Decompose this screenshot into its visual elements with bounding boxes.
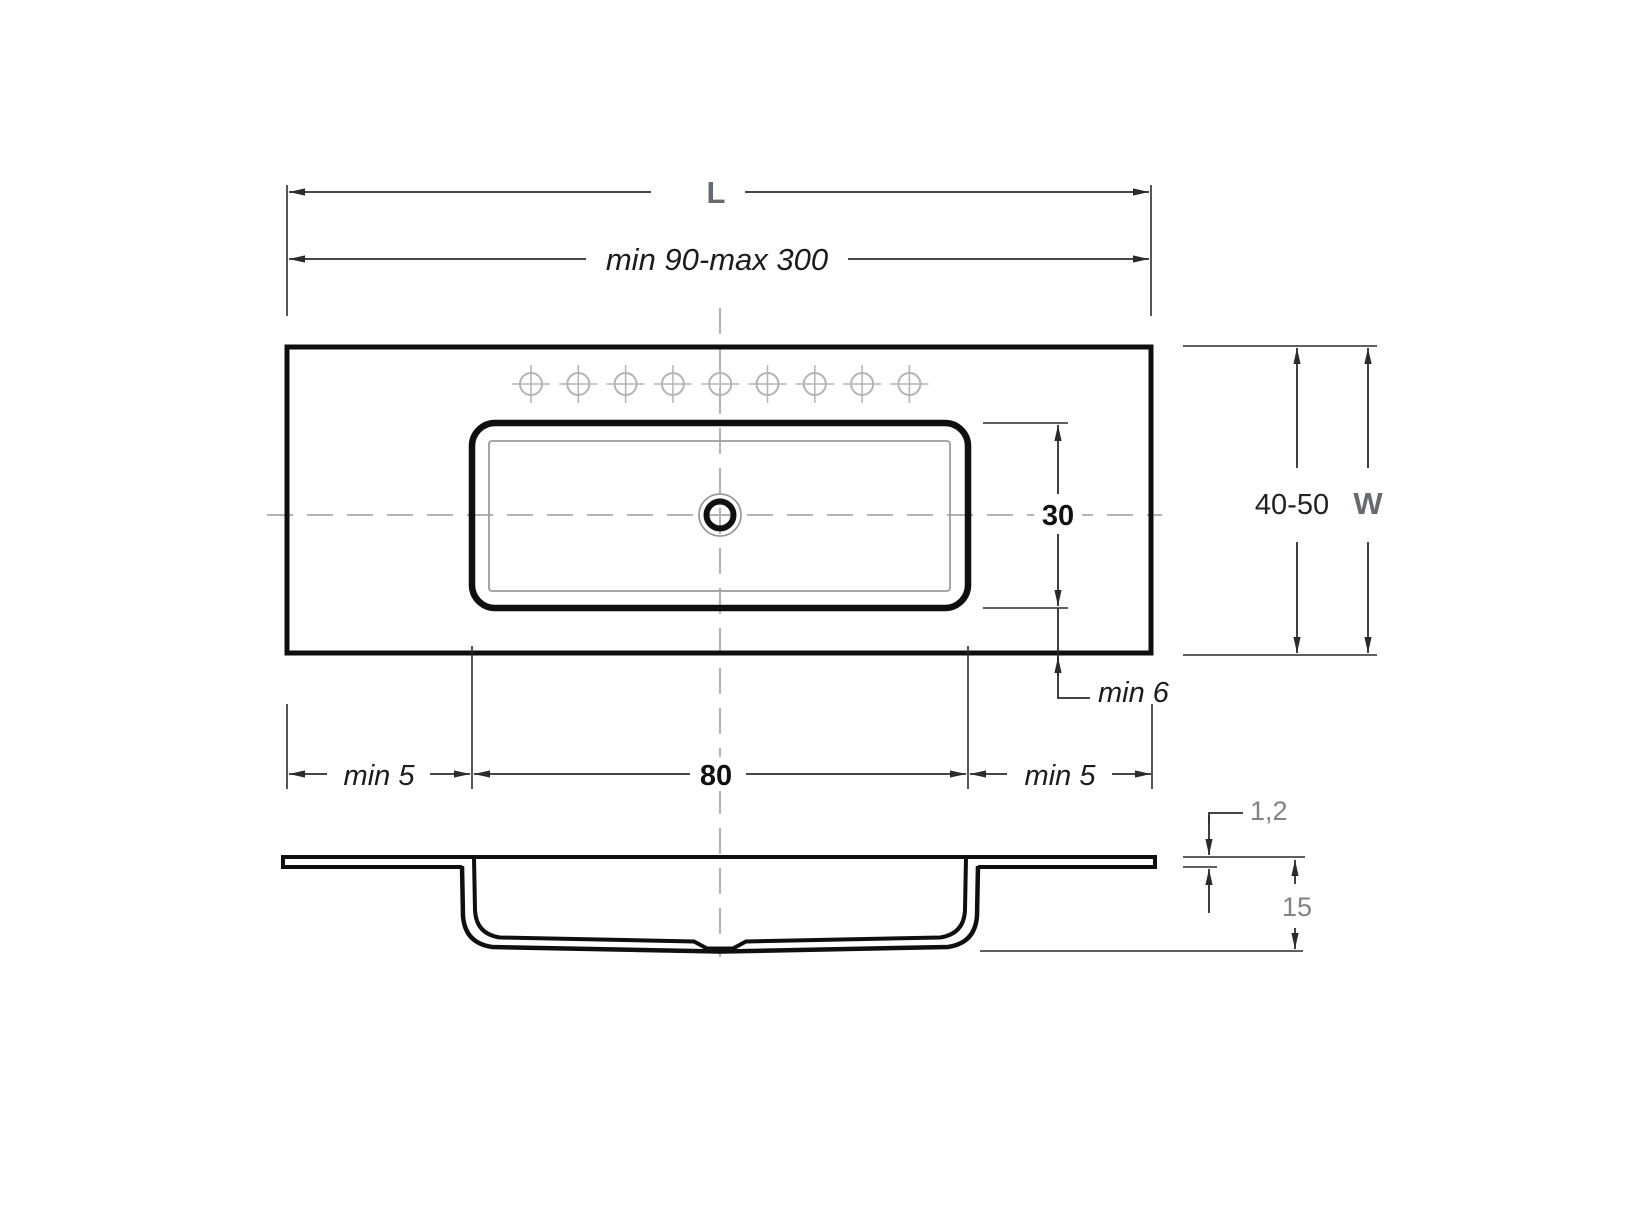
left-edge-label: min 5 — [344, 760, 416, 792]
right-edge-label: min 5 — [1025, 760, 1097, 792]
basin-height-label: 30 — [1042, 500, 1074, 532]
bowl-depth-label: 15 — [1282, 892, 1312, 922]
length-range-label: min 90-max 300 — [606, 242, 828, 277]
faucet-hole-marker — [559, 365, 597, 403]
dimensions: L min 90-max 300 40-50 W 30 min 6 min 5 … — [289, 175, 1383, 949]
thickness-label: 1,2 — [1250, 796, 1288, 826]
faucet-hole-marker — [843, 365, 881, 403]
faucet-hole-marker — [607, 365, 645, 403]
length-letter-label: L — [707, 175, 726, 210]
extension-lines — [287, 185, 1377, 951]
thickness-leader-line — [1209, 813, 1243, 823]
width-letter-label: W — [1353, 486, 1383, 521]
faucet-hole-marker — [701, 365, 739, 403]
faucet-hole-marker — [749, 365, 787, 403]
faucet-hole-marker — [890, 365, 928, 403]
faucet-hole-marker — [796, 365, 834, 403]
rear-edge-label: min 6 — [1098, 677, 1170, 709]
basin-width-label: 80 — [700, 760, 732, 792]
width-range-label: 40-50 — [1255, 489, 1329, 521]
centerlines — [267, 308, 1162, 957]
faucet-hole-marker — [512, 365, 550, 403]
drawing-canvas: L min 90-max 300 40-50 W 30 min 6 min 5 … — [0, 0, 1628, 1221]
faucet-holes — [512, 365, 928, 403]
technical-drawing: L min 90-max 300 40-50 W 30 min 6 min 5 … — [0, 0, 1628, 1221]
faucet-hole-marker — [654, 365, 692, 403]
